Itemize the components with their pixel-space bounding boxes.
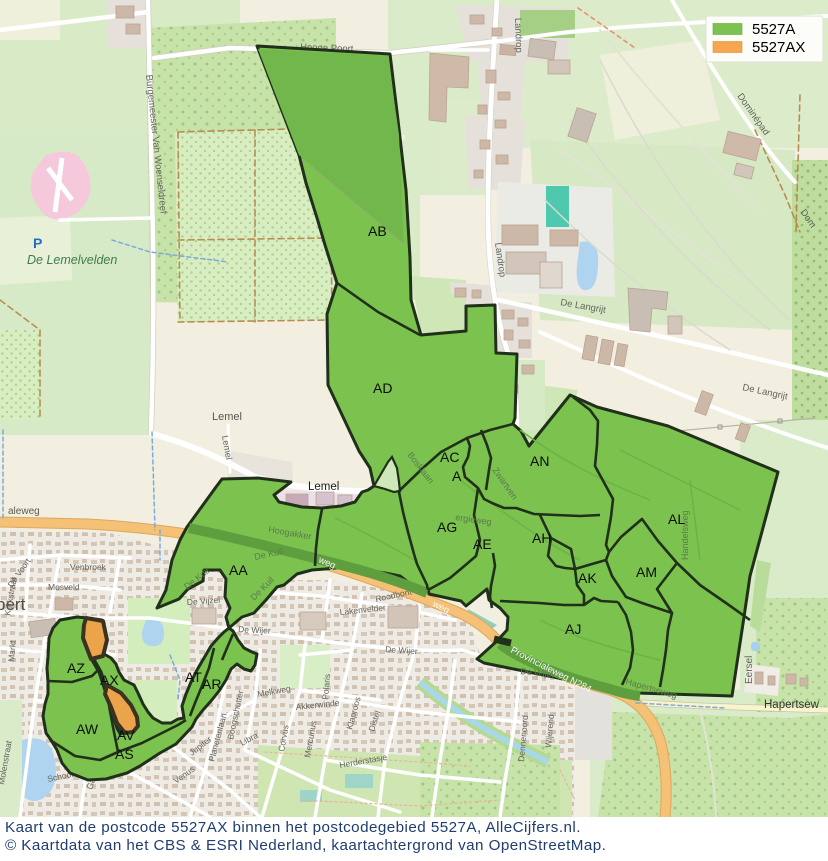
- svg-text:Mosveld: Mosveld: [48, 582, 80, 592]
- svg-text:AW: AW: [76, 721, 99, 737]
- svg-text:AG: AG: [437, 519, 457, 535]
- svg-text:AL: AL: [668, 511, 685, 527]
- svg-text:P: P: [33, 235, 42, 251]
- svg-text:AK: AK: [578, 570, 597, 586]
- svg-text:AT: AT: [185, 669, 202, 685]
- svg-text:AA: AA: [229, 562, 248, 578]
- svg-text:5527AX: 5527AX: [752, 39, 805, 56]
- svg-text:AD: AD: [373, 380, 392, 396]
- svg-text:AM: AM: [636, 564, 657, 580]
- svg-text:AE: AE: [473, 536, 492, 552]
- svg-text:AZ: AZ: [67, 660, 85, 676]
- svg-text:Lemel: Lemel: [212, 411, 242, 423]
- svg-text:De Lemelvelden: De Lemelvelden: [27, 253, 117, 267]
- svg-text:AH: AH: [532, 530, 551, 546]
- svg-text:5527A: 5527A: [752, 21, 795, 38]
- svg-text:AJ: AJ: [565, 621, 581, 637]
- svg-text:AC: AC: [440, 449, 459, 465]
- svg-text:Markt: Markt: [6, 639, 18, 662]
- svg-text:Hapertsew: Hapertsew: [764, 699, 820, 711]
- svg-text:A: A: [452, 468, 462, 484]
- svg-text:Venbroek: Venbroek: [70, 562, 107, 572]
- svg-text:Eersel: Eersel: [744, 656, 755, 684]
- svg-text:AV: AV: [117, 727, 135, 743]
- svg-text:De Wijer: De Wijer: [238, 624, 271, 636]
- svg-text:Lemel: Lemel: [308, 481, 339, 493]
- svg-text:Landrop: Landrop: [512, 18, 524, 53]
- svg-text:© Kaartdata van het CBS & ESRI: © Kaartdata van het CBS & ESRI Nederland…: [5, 837, 606, 854]
- svg-text:aleweg: aleweg: [8, 506, 40, 517]
- svg-text:AX: AX: [100, 672, 119, 688]
- svg-text:AR: AR: [202, 676, 221, 692]
- svg-text:AS: AS: [115, 746, 134, 762]
- svg-text:Kaart van de postcode 5527AX b: Kaart van de postcode 5527AX binnen het …: [5, 819, 581, 836]
- svg-text:AN: AN: [530, 453, 549, 469]
- svg-text:AB: AB: [368, 223, 387, 239]
